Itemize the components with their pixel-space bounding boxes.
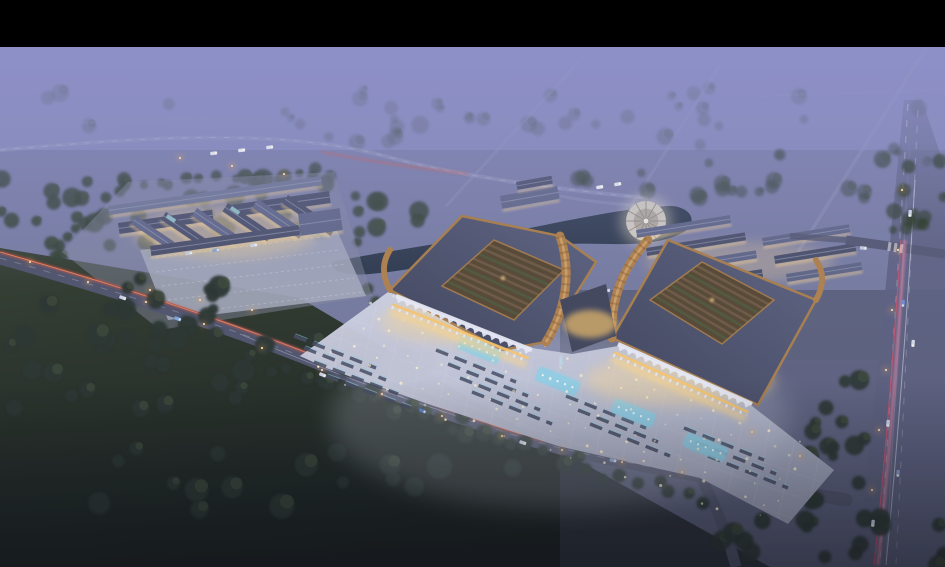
letterbox-bar (0, 0, 945, 47)
unifying-haze (0, 47, 945, 567)
rendering-canvas (0, 0, 945, 567)
aerial-rendering: Night-time aerial architectural renderin… (0, 0, 945, 567)
